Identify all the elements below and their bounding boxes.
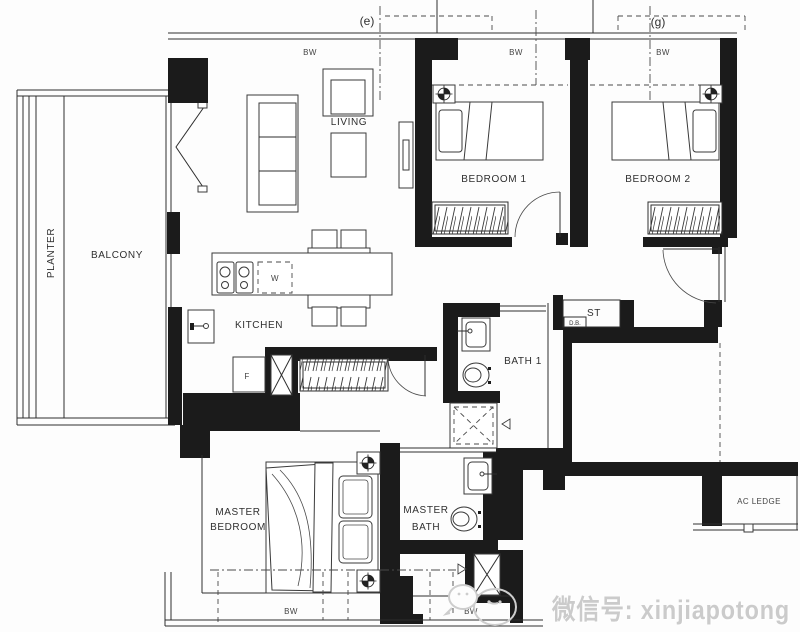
level-marker: [458, 564, 466, 574]
balcony-door: [176, 102, 207, 192]
dining-chair: [341, 230, 366, 249]
master-basin: [464, 458, 497, 494]
bath1-toilet: [463, 363, 491, 387]
wardrobe-bedroom1: [432, 202, 508, 234]
bath1-basin: [453, 318, 490, 351]
hall-wardrobe: [300, 359, 388, 391]
armchair: [323, 69, 373, 116]
main-entry-door: [663, 249, 718, 303]
master-bedroom: MASTER BEDROOM: [202, 431, 380, 593]
bath1: BATH 1: [450, 303, 548, 448]
store-room: ST D.B.: [563, 300, 620, 327]
living-label: LIVING: [331, 117, 367, 128]
washer-label: W: [271, 274, 279, 283]
bedroom2: BEDROOM 2: [612, 85, 722, 234]
balcony-label: BALCONY: [91, 250, 143, 261]
bw-label-master: BW: [284, 607, 298, 616]
bedroom1-label: BEDROOM 1: [461, 174, 526, 185]
watermark-text: 微信号: xinjiapotong: [551, 595, 790, 625]
dining-chair: [312, 307, 337, 326]
master-bath-label-1: MASTER: [403, 505, 448, 516]
store-label: ST: [587, 308, 601, 319]
kitchen-shaft: [271, 355, 292, 395]
level-marker: [502, 419, 510, 429]
living-room: LIVING: [247, 69, 413, 212]
wardrobe-bedroom2: [648, 202, 722, 234]
bw-label-bedroom2: BW: [656, 48, 670, 57]
db-label: D.B.: [569, 321, 581, 327]
grid-label-e: (e): [360, 14, 375, 28]
sofa: [247, 95, 298, 212]
floor-plan-page: (e) (g) BW BW BW PLANTER BALCONY: [0, 0, 800, 632]
grid-label-g: (g): [651, 15, 666, 29]
fridge-label: F: [244, 372, 249, 381]
bath1-shower: [450, 403, 497, 448]
entry-hall: [663, 247, 725, 303]
ac-unit-bedroom2: [700, 85, 722, 103]
bw-label-living: BW: [303, 48, 317, 57]
kitchen-label: KITCHEN: [235, 320, 283, 331]
tv-console: [399, 122, 413, 188]
coffee-table: [331, 133, 366, 177]
door-bedroom1: [515, 192, 560, 237]
ac-unit-master-2: [357, 570, 380, 592]
dining-chair: [341, 307, 366, 326]
bed-bedroom2: [612, 102, 719, 160]
dining-chair: [312, 230, 337, 249]
ac-unit-master-1: [357, 452, 380, 474]
floor-plan-drawing: (e) (g) BW BW BW PLANTER BALCONY: [0, 0, 800, 632]
bedroom2-label: BEDROOM 2: [625, 174, 690, 185]
fridge: F: [233, 357, 265, 392]
bedroom1: BEDROOM 1: [432, 85, 560, 237]
bw-label-bedroom1: BW: [509, 48, 523, 57]
planter-label: PLANTER: [46, 228, 57, 278]
kitchen-sink: [188, 310, 214, 343]
ac-ledge-label: AC LEDGE: [737, 497, 781, 506]
master-bath-label-2: BATH: [412, 522, 440, 533]
bed-bedroom1: [436, 102, 543, 160]
master-toilet: [451, 507, 481, 531]
master-bedroom-label-1: MASTER: [215, 507, 260, 518]
bath1-label: BATH 1: [504, 356, 542, 367]
master-suite-door: [388, 355, 426, 396]
master-bedroom-label-2: BEDROOM: [210, 522, 266, 533]
ac-unit-bedroom1: [433, 85, 455, 103]
